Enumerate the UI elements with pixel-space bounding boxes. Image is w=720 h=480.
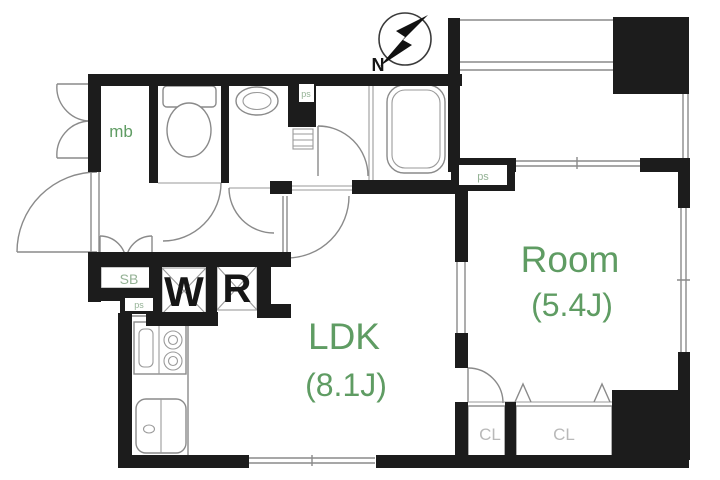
closet-label: CL	[479, 425, 501, 444]
pipe-space-label: ps	[301, 89, 311, 99]
folding-door-icon	[594, 384, 610, 402]
stove-burner-inner	[169, 357, 178, 366]
entrance-door-arc	[17, 172, 97, 252]
balcony-side-rail	[683, 94, 688, 158]
washbasin-icon	[236, 87, 278, 115]
entrance-opening	[91, 172, 99, 252]
pillar-top-right	[613, 17, 689, 94]
wall-segment	[206, 254, 217, 314]
room-door-arc	[468, 368, 503, 403]
stove-grill-icon	[139, 329, 153, 367]
wall-segment	[88, 74, 101, 172]
hall-ldk-door	[283, 186, 352, 258]
floorplan-svg: N mb SB ps ps ps W R LDK (8.1J) Room (5.…	[0, 0, 720, 480]
wall-segment	[678, 158, 690, 208]
hall-ldk-door-arc	[287, 196, 349, 258]
ldk-room-partition-window	[457, 262, 465, 333]
pillar-bottom-right	[612, 390, 690, 460]
pipe-space-label: ps	[134, 300, 144, 310]
wall-segment	[149, 76, 158, 183]
washroom-door-arc	[229, 188, 274, 233]
stove-burner-icon	[164, 331, 182, 349]
sink-drain-icon	[144, 425, 155, 433]
toilet-door	[158, 183, 221, 241]
ldk-size-label: (8.1J)	[305, 367, 387, 403]
wall-segment	[257, 304, 291, 318]
closet-label: CL	[553, 425, 575, 444]
wall-segment	[352, 180, 462, 194]
refrigerator-label: R	[223, 267, 252, 311]
room-name-label: Room	[521, 239, 620, 280]
wall-segment	[270, 181, 292, 194]
compass-circle	[379, 13, 431, 65]
wall-segment	[505, 402, 516, 462]
wall-segment	[221, 76, 229, 183]
north-compass: N	[372, 13, 432, 75]
meter-box-door-arc-top	[57, 84, 88, 121]
wall-segment	[118, 313, 132, 468]
meter-box-label: mb	[109, 122, 133, 141]
toilet-door-arc	[163, 183, 221, 241]
bath-partition	[369, 86, 373, 180]
shoe-box-label: SB	[120, 271, 139, 287]
ldk-south-window	[249, 455, 375, 466]
entrance-door	[17, 172, 99, 252]
hall-ldk-opening	[292, 186, 352, 190]
stove-burner-icon	[164, 352, 182, 370]
floor-plan: N mb SB ps ps ps W R LDK (8.1J) Room (5.…	[0, 0, 720, 480]
ldk-name-label: LDK	[308, 316, 380, 357]
meter-box-door-arc-bottom	[57, 121, 88, 158]
stove-burner-inner	[169, 336, 178, 345]
north-label: N	[372, 55, 385, 75]
bathroom-door-arc	[318, 126, 368, 176]
kitchen-counter	[132, 316, 188, 455]
folding-door-icon	[515, 384, 531, 402]
pipe-space-label: ps	[477, 171, 489, 183]
hall-ldk-door-leaf	[283, 196, 287, 258]
bathtub-icon	[387, 85, 445, 173]
room-door	[468, 368, 503, 403]
washroom-door	[229, 188, 274, 233]
meter-box-doors	[57, 84, 88, 158]
wall-segment	[455, 333, 468, 368]
room-north-window	[516, 157, 640, 169]
wall-segment	[678, 352, 690, 394]
washing-machine-label: W	[164, 268, 204, 315]
balcony-inner-rail	[460, 62, 613, 70]
wall-segment	[88, 74, 462, 86]
room-size-label: (5.4J)	[531, 287, 613, 323]
wall-segment	[448, 18, 460, 163]
closets	[468, 384, 612, 456]
wash-shelf-lines	[293, 134, 313, 146]
room-east-window	[677, 208, 690, 352]
wall-segment	[118, 455, 249, 468]
kitchen	[132, 316, 188, 455]
wall-segment	[455, 402, 468, 462]
toilet-bowl-icon	[167, 103, 211, 157]
